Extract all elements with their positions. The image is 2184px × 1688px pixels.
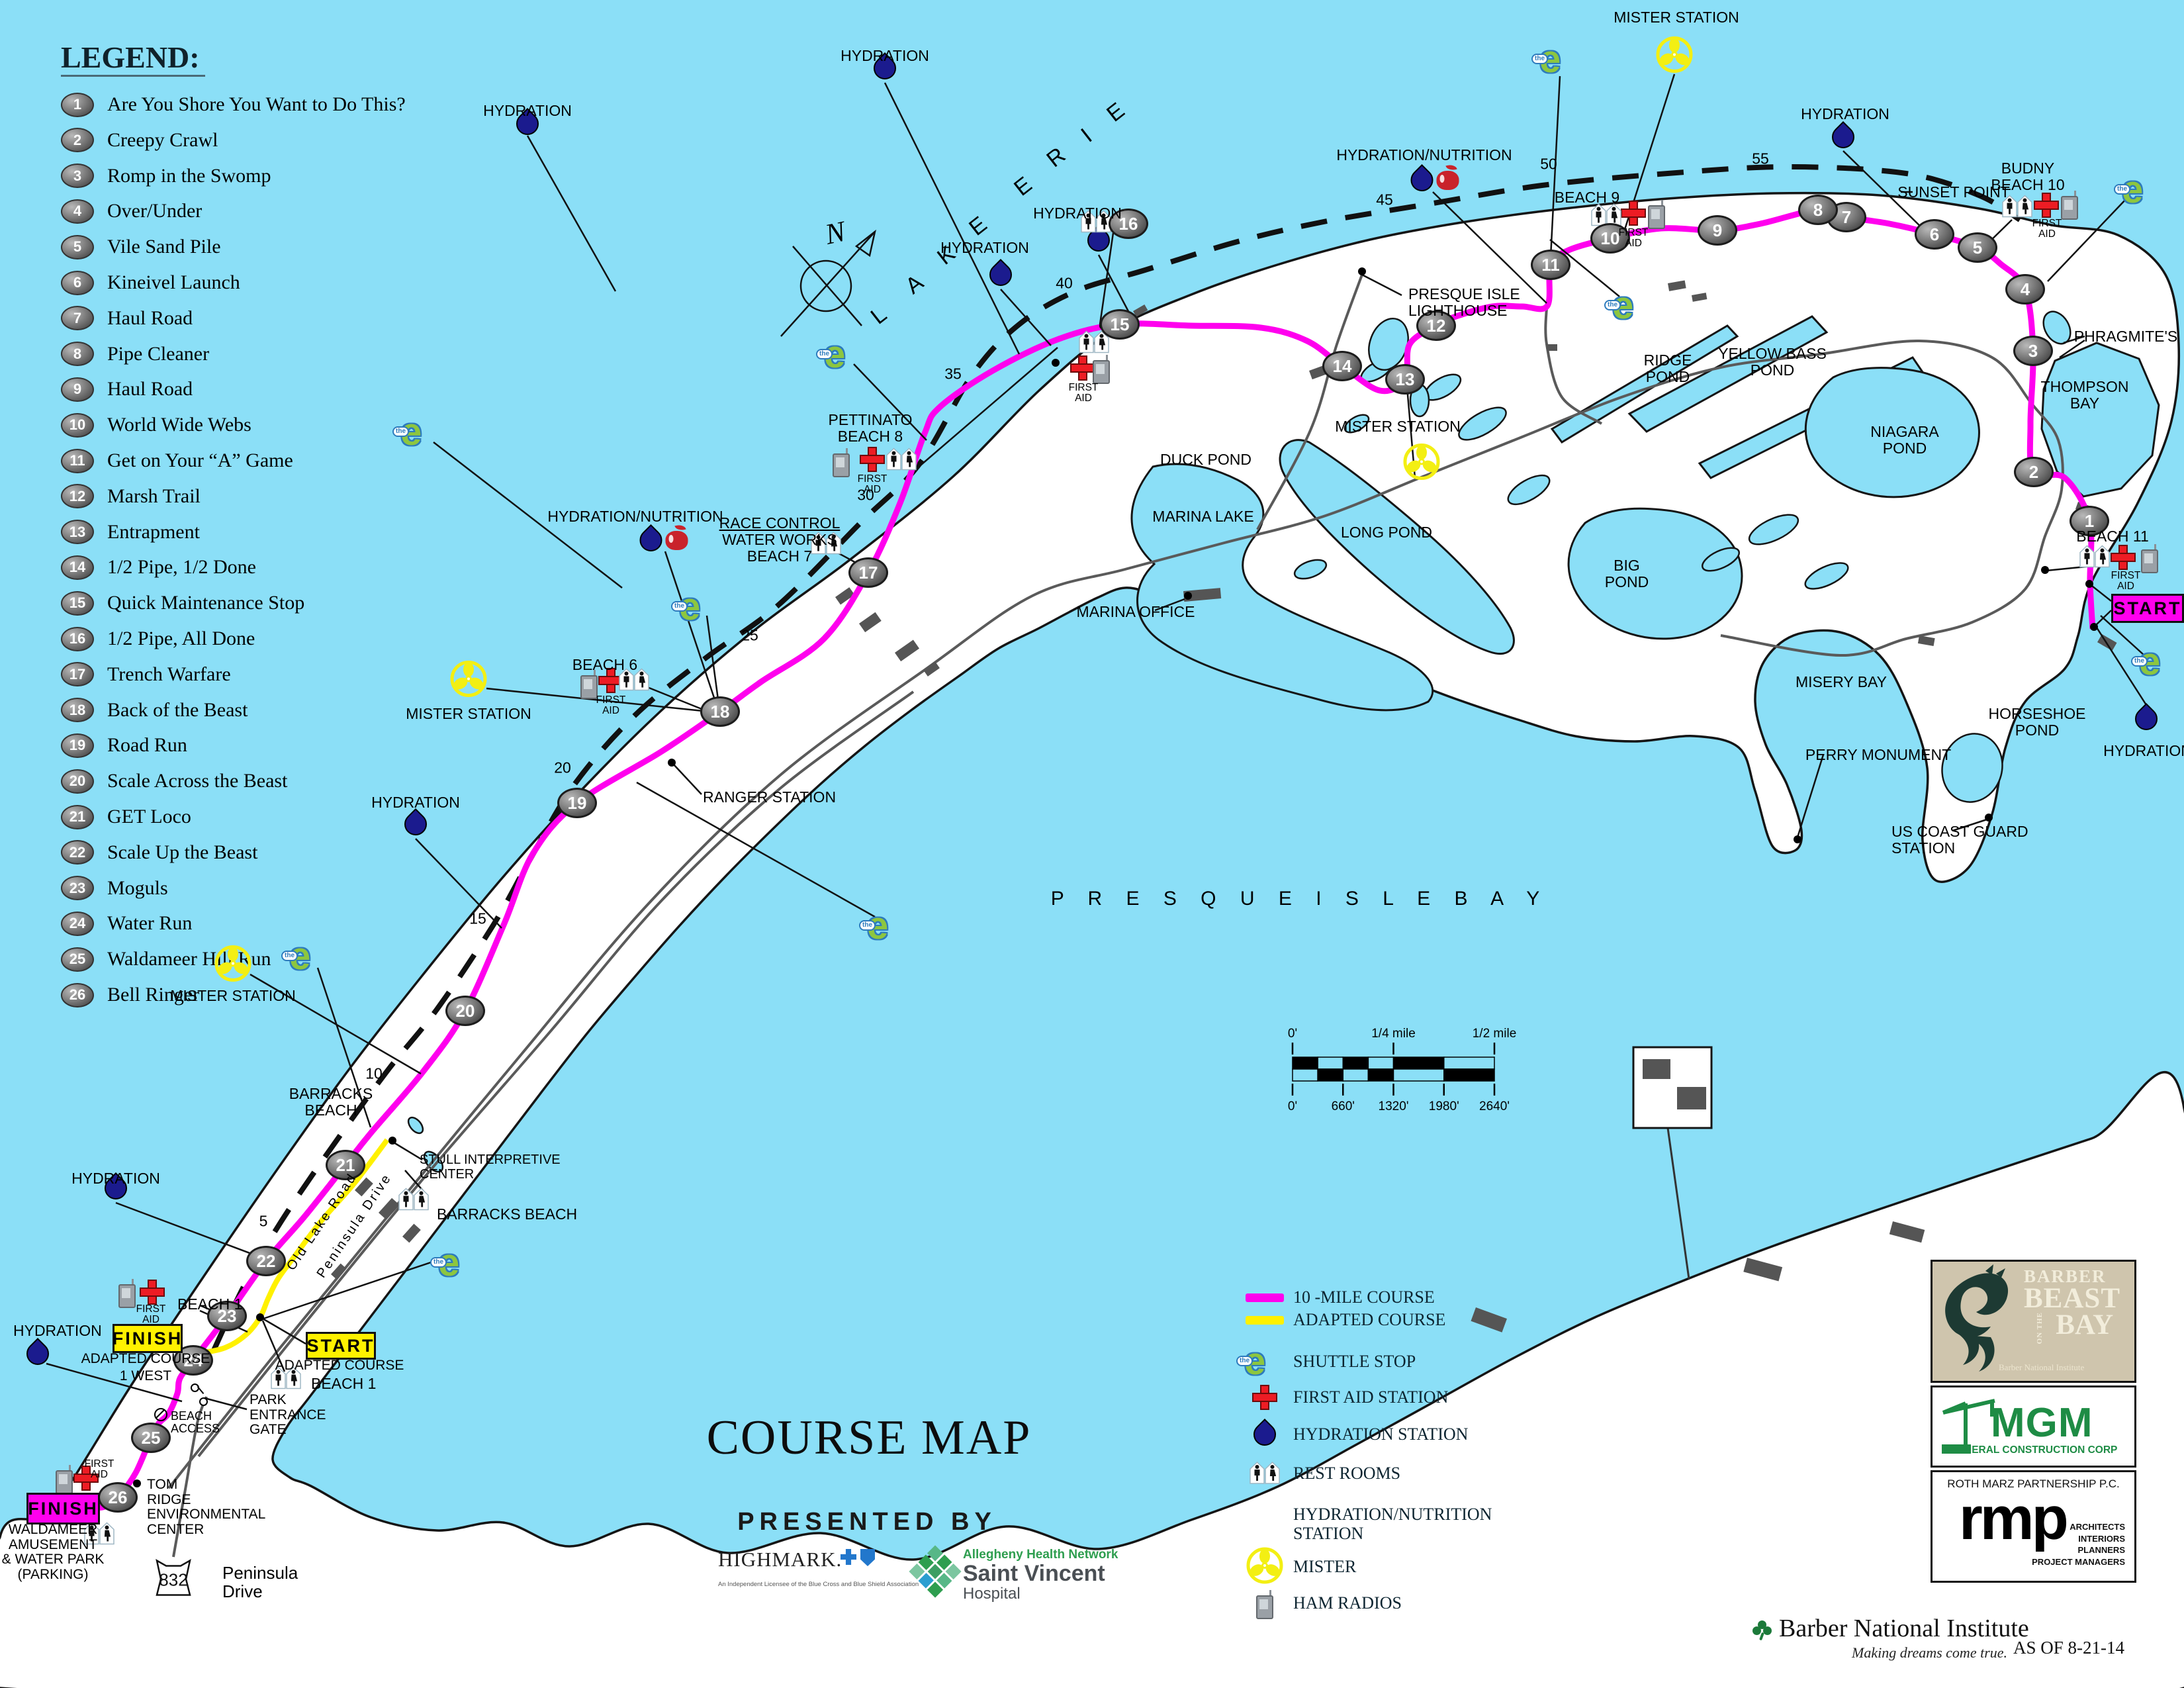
shuttle-stop-icon: ethe [1539, 42, 1580, 77]
symbol-legend-row: HYDRATION STATION [1236, 1423, 1468, 1446]
obstacle-marker-6: 6 [1915, 219, 1954, 250]
legend-item-label: Kineivel Launch [107, 271, 240, 294]
mgm-wordmark: MGM [1991, 1399, 2093, 1446]
symbol-legend-row: HYDRATION/NUTRITIONSTATION [1236, 1505, 1492, 1543]
restrooms-icon [886, 447, 917, 474]
symbol-legend-label: 10 -MILE COURSE [1293, 1288, 1435, 1307]
legend-item-label: Entrapment [107, 521, 200, 543]
obstacle-marker-14: 14 [1322, 351, 1362, 381]
mile-marker-5: 5 [259, 1213, 268, 1231]
obstacle-marker-13: 13 [1385, 364, 1425, 395]
symbol-legend-label: HYDRATION/NUTRITIONSTATION [1293, 1505, 1492, 1543]
obstacle-marker-3: 3 [2013, 336, 2053, 366]
legend-item-label: GET Loco [107, 806, 191, 828]
legend-item-number: 18 [61, 698, 94, 722]
map-label: DUCK POND [1160, 451, 1251, 468]
first-aid-cross-icon [860, 447, 885, 472]
map-label: HYDRATION [2103, 743, 2184, 759]
legend-item-number: 20 [61, 769, 94, 794]
map-overlay: LEGEND: 1Are You Shore You Want to Do Th… [0, 0, 2184, 1688]
legend-item-label: Scale Across the Beast [107, 770, 287, 792]
rmp-services: ARCHITECTSINTERIORSPLANNERSPROJECT MANAG… [2032, 1521, 2125, 1568]
obstacle-marker-8: 8 [1798, 195, 1838, 225]
map-label: TOMRIDGEENVIRONMENTALCENTER [147, 1477, 265, 1538]
mile-marker-40: 40 [1056, 275, 1073, 293]
symbol-legend-label: ADAPTED COURSE [1293, 1311, 1445, 1330]
map-label: E [1010, 173, 1036, 201]
legend-item-5: 5Vile Sand Pile [61, 234, 221, 260]
page-title: COURSE MAP [707, 1410, 1032, 1466]
ahn-diamond-icon [909, 1545, 961, 1597]
ham-radio-icon [580, 670, 598, 696]
obstacle-marker-9: 9 [1698, 215, 1737, 246]
beast-word-beast: BEAST [2024, 1286, 2120, 1313]
map-label: HYDRATION [71, 1170, 160, 1187]
bluecross-blueshield-icons [841, 1549, 875, 1566]
legend-item-label: Haul Road [107, 307, 193, 330]
map-label: RACE CONTROLWATER WORKSBEACH 7 [719, 515, 841, 564]
map-label: YELLOW BASSPOND [1718, 346, 1827, 379]
legend-item-label: Scale Up the Beast [107, 841, 257, 864]
first-aid-label: FIRSTAID [2032, 218, 2062, 240]
legend-item-10: 10World Wide Webs [61, 412, 251, 438]
map-label: MARINA LAKE [1152, 508, 1253, 525]
first-aid-cross-icon [1252, 1385, 1277, 1410]
map-label: PETTINATOBEACH 8 [829, 412, 913, 445]
map-label: RANGER STATION [703, 789, 836, 806]
map-label: LONG POND [1341, 524, 1432, 541]
legend-item-23: 23Moguls [61, 875, 168, 902]
legend-item-6: 6Kineivel Launch [61, 269, 240, 296]
rmp-logo: ROTH MARZ PARTNERSHIP P.C. rmp ARCHITECT… [1931, 1470, 2136, 1583]
highmark-logo: HIGHMARK. An Independent Licensee of the… [718, 1548, 890, 1588]
first-aid-label: FIRSTAID [85, 1459, 114, 1481]
ahn-network-label: Allegheny Health Network [963, 1548, 1118, 1562]
symbol-legend-row: 10 -MILE COURSE [1236, 1288, 1435, 1307]
legend-item-number: 5 [61, 235, 94, 259]
legend-item-number: 19 [61, 733, 94, 758]
map-label: PeninsulaDrive [222, 1564, 298, 1601]
hydration-drop-icon [404, 813, 427, 835]
map-label: E [965, 212, 991, 241]
shuttle-stop-icon: ethe [824, 337, 865, 373]
legend-item-number: 26 [61, 983, 94, 1008]
park-gate-icon [191, 1383, 208, 1406]
footer-institute: Barber National Institute Making dreams … [1752, 1614, 2029, 1662]
hydration-nutrition-icon [1411, 169, 1459, 191]
symbol-legend-row: etheSHUTTLE STOP [1236, 1344, 1416, 1380]
legend-item-label: Over/Under [107, 200, 202, 222]
obstacle-marker-22: 22 [246, 1246, 286, 1276]
map-label: NIAGARAPOND [1870, 424, 1939, 457]
map-label: BARRACKSBEACH [289, 1086, 373, 1119]
legend-item-number: 7 [61, 306, 94, 330]
symbol-legend-label: MISTER [1293, 1558, 1356, 1577]
course-swatch-magenta [1246, 1293, 1284, 1302]
map-label: PARKENTRANCEGATE [250, 1393, 326, 1438]
map-label: L [866, 303, 891, 330]
mile-marker-45: 45 [1376, 191, 1393, 209]
hydration-nutrition-icon [640, 529, 688, 551]
map-label: PERRY MONUMENT [1805, 747, 1951, 763]
legend-title: LEGEND: [61, 40, 205, 77]
legend-item-11: 11Get on Your “A” Game [61, 447, 293, 474]
map-label: PHRAGMITE'S [2074, 328, 2177, 345]
map-label: I [1077, 124, 1097, 148]
legend-item-label: Moguls [107, 877, 168, 900]
legend-item-number: 23 [61, 876, 94, 900]
first-aid-cross-icon [1070, 355, 1095, 381]
hydration-drop-icon [1253, 1423, 1276, 1446]
legend-item-18: 18Back of the Beast [61, 697, 248, 724]
legend-item-number: 3 [61, 164, 94, 188]
legend-item-label: Haul Road [107, 378, 193, 400]
legend-item-number: 6 [61, 271, 94, 295]
map-label: 1 WEST [120, 1369, 171, 1384]
hydration-drop-icon [989, 263, 1012, 286]
mister-fan-icon [449, 660, 488, 702]
mister-fan-icon [1246, 1546, 1284, 1588]
legend-item-3: 3Romp in the Swomp [61, 163, 271, 189]
obstacle-marker-4: 4 [2005, 274, 2045, 305]
beast-word-onthe: ON THE [2036, 1313, 2043, 1344]
map-label: BEACHACCESS [171, 1410, 220, 1436]
route-832-keystone-sign: 832 [152, 1557, 195, 1601]
legend-item-label: Water Run [107, 912, 192, 935]
symbol-legend-row: FIRST AID STATION [1236, 1385, 1448, 1410]
obstacle-marker-26: 26 [98, 1482, 138, 1513]
map-label: STULL INTERPRETIVECENTER [420, 1153, 561, 1182]
symbol-legend-icon [1236, 1293, 1293, 1302]
map-label: WALDAMEERAMUSEMENT& WATER PARK(PARKING) [2, 1523, 105, 1583]
as-of-date: AS OF 8-21-14 [2013, 1638, 2124, 1658]
beast-word-bay: BAY [2056, 1312, 2113, 1339]
first-aid-cross-icon [2034, 193, 2059, 218]
legend-item-22: 22Scale Up the Beast [61, 839, 257, 866]
symbol-legend-row: MISTER [1236, 1546, 1356, 1588]
map-label: HYDRATION [371, 794, 460, 811]
legend-item-number: 8 [61, 342, 94, 366]
ham-radio-icon [2141, 544, 2158, 571]
ham-radio-icon [118, 1279, 136, 1305]
map-label: MARINA OFFICE [1077, 604, 1195, 620]
shamrock-icon [1752, 1620, 1772, 1640]
first-aid-label: FIRSTAID [2111, 571, 2141, 592]
ham-radio-icon [1648, 200, 1665, 226]
footer-tagline: Making dreams come true. [1852, 1644, 2029, 1662]
map-label: HYDRATION [1033, 205, 1122, 222]
map-label: BEACH 1 [311, 1376, 376, 1392]
ahn-hospital-name: Saint Vincent [963, 1562, 1118, 1585]
map-label: BARRACKS BEACH [437, 1206, 577, 1223]
beach-access-icon [154, 1408, 167, 1421]
map-label: P R E S Q U E I S L E B A Y [1051, 888, 1549, 910]
obstacle-legend-panel: LEGEND: 1Are You Shore You Want to Do Th… [61, 40, 432, 77]
legend-item-label: Romp in the Swomp [107, 165, 271, 187]
ham-radio-icon [833, 448, 850, 475]
legend-item-8: 8Pipe Cleaner [61, 341, 209, 367]
shuttle-stop-icon: ethe [400, 414, 441, 450]
first-aid-label: FIRSTAID [136, 1304, 166, 1326]
svg-text:832: 832 [159, 1570, 187, 1590]
obstacle-marker-11: 11 [1531, 250, 1570, 280]
mgm-sub-label: GENERAL CONSTRUCTION CORP [1950, 1444, 2118, 1456]
map-label: MISTER STATION [406, 706, 531, 722]
start-box: START [2111, 594, 2184, 623]
legend-item-number: 1 [61, 93, 94, 117]
symbol-legend-row: HAM RADIOS [1236, 1590, 1402, 1617]
shuttle-stop-icon: ethe [2122, 172, 2163, 208]
map-label: ADAPTED COURSE [81, 1352, 210, 1367]
shuttle-stop-icon: ethe [438, 1245, 479, 1281]
legend-item-label: Pipe Cleaner [107, 343, 209, 365]
mister-fan-icon [214, 945, 252, 986]
first-aid-cross-icon [2111, 545, 2136, 570]
legend-item-7: 7Haul Road [61, 305, 193, 332]
legend-item-number: 24 [61, 912, 94, 936]
obstacle-marker-18: 18 [700, 696, 740, 727]
legend-item-label: Are You Shore You Want to Do This? [107, 93, 406, 116]
ahn-saint-vincent-logo: Allegheny Health Network Saint Vincent H… [917, 1548, 1118, 1603]
legend-item-label: Back of the Beast [107, 699, 248, 722]
symbol-legend-icon [1236, 1546, 1293, 1588]
restrooms-icon [2079, 544, 2110, 571]
mile-marker-15: 15 [469, 910, 486, 928]
symbol-legend-icon [1236, 1590, 1293, 1617]
map-label: HYDRATION [1801, 106, 1889, 122]
legend-item-13: 13Entrapment [61, 519, 200, 545]
map-label: ADAPTED COURSE [275, 1358, 404, 1374]
ham-radio-icon [1256, 1590, 1273, 1617]
map-label: HYDRATION/NUTRITION [1336, 147, 1512, 164]
ham-radio-icon [1093, 355, 1110, 381]
map-label: MISERY BAY [1796, 674, 1887, 690]
legend-item-16: 161/2 Pipe, All Done [61, 626, 255, 652]
map-label: A [901, 271, 928, 299]
legend-item-label: Quick Maintenance Stop [107, 592, 304, 614]
legend-item-label: Road Run [107, 734, 187, 757]
barber-beast-logo: BARBER BEAST ON THEBAY Barber National I… [1931, 1260, 2136, 1383]
mile-marker-50: 50 [1540, 156, 1557, 173]
shuttle-stop-icon: ethe [679, 589, 720, 625]
legend-item-number: 13 [61, 520, 94, 544]
legend-item-12: 12Marsh Trail [61, 483, 201, 510]
obstacle-marker-5: 5 [1958, 232, 1997, 263]
legend-item-label: World Wide Webs [107, 414, 251, 436]
legend-item-number: 15 [61, 591, 94, 616]
mile-marker-10: 10 [365, 1065, 383, 1083]
mgm-logo: MGM GENERAL CONSTRUCTION CORP [1931, 1385, 2136, 1468]
legend-item-label: Trench Warfare [107, 663, 231, 686]
legend-item-label: Vile Sand Pile [107, 236, 221, 258]
symbol-legend-icon: ethe [1236, 1344, 1293, 1380]
ahn-hospital-word: Hospital [963, 1585, 1118, 1603]
shuttle-stop-icon: ethe [1244, 1344, 1285, 1380]
mister-fan-icon [1402, 443, 1441, 485]
symbol-legend-icon [1236, 1385, 1293, 1410]
symbol-legend-label: HAM RADIOS [1293, 1594, 1402, 1613]
first-aid-cross-icon [140, 1280, 165, 1305]
symbol-legend-label: REST ROOMS [1293, 1464, 1400, 1483]
course-swatch-yellow [1246, 1316, 1284, 1325]
start-box: START [306, 1332, 376, 1360]
ham-radio-icon [56, 1465, 73, 1491]
map-label: HYDRATION [483, 103, 572, 119]
obstacle-marker-17: 17 [848, 557, 888, 588]
symbol-legend-row: ADAPTED COURSE [1236, 1311, 1445, 1330]
mile-marker-25: 25 [741, 627, 758, 645]
legend-item-14: 141/2 Pipe, 1/2 Done [61, 554, 256, 581]
legend-item-24: 24Water Run [61, 910, 192, 937]
map-label: BEACH 9 [1555, 189, 1619, 206]
mister-fan-icon [1655, 36, 1694, 77]
shuttle-stop-icon: ethe [289, 939, 330, 974]
map-label: BIGPOND [1605, 557, 1649, 590]
map-label: HYDRATION [841, 48, 929, 64]
first-aid-cross-icon [1621, 201, 1646, 226]
obstacle-marker-20: 20 [445, 996, 485, 1026]
highmark-tagline: An Independent Licensee of the Blue Cros… [718, 1581, 890, 1588]
legend-item-2: 2Creepy Crawl [61, 127, 218, 154]
symbol-legend-label: FIRST AID STATION [1293, 1388, 1448, 1407]
shuttle-stop-icon: ethe [1612, 288, 1653, 324]
course-map-canvas: 0'1/4 mile1/2 mile0'660'1320'1980'2640' … [0, 0, 2184, 1688]
symbol-legend-icon [1236, 1460, 1293, 1487]
map-label: BEACH 11 [2076, 528, 2149, 545]
legend-item-number: 2 [61, 128, 94, 152]
first-aid-label: FIRSTAID [596, 695, 626, 717]
first-aid-label: FIRSTAID [1069, 383, 1099, 404]
legend-item-number: 4 [61, 199, 94, 224]
obstacle-marker-25: 25 [131, 1423, 171, 1453]
obstacle-marker-19: 19 [557, 788, 597, 818]
obstacle-marker-15: 15 [1100, 309, 1140, 340]
restrooms-icon [398, 1187, 429, 1214]
hydration-drop-icon [2135, 708, 2158, 730]
legend-item-17: 17Trench Warfare [61, 661, 231, 688]
legend-item-number: 25 [61, 947, 94, 972]
footer-institute-name: Barber National Institute [1779, 1614, 2029, 1643]
legend-item-21: 21GET Loco [61, 804, 191, 830]
legend-item-number: 14 [61, 555, 94, 580]
legend-item-label: Get on Your “A” Game [107, 449, 293, 472]
legend-item-number: 11 [61, 449, 94, 473]
symbol-legend-label: SHUTTLE STOP [1293, 1352, 1416, 1372]
symbol-legend-icon [1236, 1423, 1293, 1446]
legend-item-label: Creepy Crawl [107, 129, 218, 152]
map-label: MISTER STATION [1614, 9, 1739, 26]
map-label: HORSESHOEPOND [1989, 706, 2086, 739]
presented-by-label: PRESENTED BY [737, 1508, 997, 1536]
symbol-legend-icon [1236, 1316, 1293, 1325]
restrooms-icon [1250, 1460, 1280, 1487]
legend-item-15: 15Quick Maintenance Stop [61, 590, 304, 616]
map-label: PRESQUE ISLELIGHTHOUSE [1408, 286, 1520, 319]
legend-item-number: 22 [61, 840, 94, 865]
map-label: BEACH 1 [177, 1296, 242, 1313]
legend-item-number: 9 [61, 377, 94, 402]
legend-item-4: 4Over/Under [61, 198, 202, 224]
legend-item-19: 19Road Run [61, 732, 187, 759]
map-label: HYDRATION [13, 1323, 102, 1339]
beast-sub-label: Barber National Institute [1999, 1362, 2084, 1373]
mile-marker-55: 55 [1752, 150, 1769, 168]
highmark-wordmark: HIGHMARK. [718, 1548, 842, 1571]
map-label: MISTER STATION [170, 988, 296, 1004]
hydration-drop-icon [1832, 126, 1854, 148]
map-label: US COAST GUARDSTATION [1891, 823, 2028, 857]
finish-box: FINISH [26, 1493, 100, 1524]
map-label: BEACH 6 [572, 657, 637, 673]
shuttle-stop-icon: ethe [2139, 644, 2180, 680]
hydration-drop-icon [26, 1342, 49, 1365]
map-label: E [1103, 99, 1129, 127]
legend-item-9: 9Haul Road [61, 376, 193, 402]
map-label: BUDNYBEACH 10 [1991, 160, 2064, 193]
legend-item-number: 12 [61, 484, 94, 508]
legend-item-label: 1/2 Pipe, 1/2 Done [107, 556, 256, 579]
map-label: N [823, 216, 848, 251]
map-label: HYDRATION/NUTRITION [547, 508, 723, 525]
map-label: RIDGEPOND [1644, 352, 1692, 385]
finish-box: FINISH [113, 1324, 183, 1353]
obstacle-marker-2: 2 [2014, 457, 2054, 487]
legend-item-number: 10 [61, 413, 94, 438]
mile-marker-20: 20 [554, 759, 571, 777]
first-aid-label: FIRSTAID [1619, 228, 1649, 250]
map-label: MISTER STATION [1335, 418, 1461, 435]
legend-item-1: 1Are You Shore You Want to Do This? [61, 91, 406, 118]
symbol-legend-row: REST ROOMS [1236, 1460, 1400, 1487]
legend-item-number: 21 [61, 805, 94, 829]
legend-item-number: 17 [61, 662, 94, 686]
symbol-legend-label: HYDRATION STATION [1293, 1425, 1468, 1444]
legend-item-label: 1/2 Pipe, All Done [107, 628, 255, 650]
map-label: R [1042, 143, 1070, 172]
ham-radio-icon [2061, 191, 2078, 217]
first-aid-label: FIRSTAID [858, 474, 887, 496]
map-label: THOMPSONBAY [2041, 379, 2129, 412]
shuttle-stop-icon: ethe [867, 908, 908, 944]
legend-item-label: Marsh Trail [107, 485, 201, 508]
legend-item-20: 20Scale Across the Beast [61, 768, 287, 794]
legend-item-number: 16 [61, 627, 94, 651]
mile-marker-35: 35 [944, 365, 962, 383]
